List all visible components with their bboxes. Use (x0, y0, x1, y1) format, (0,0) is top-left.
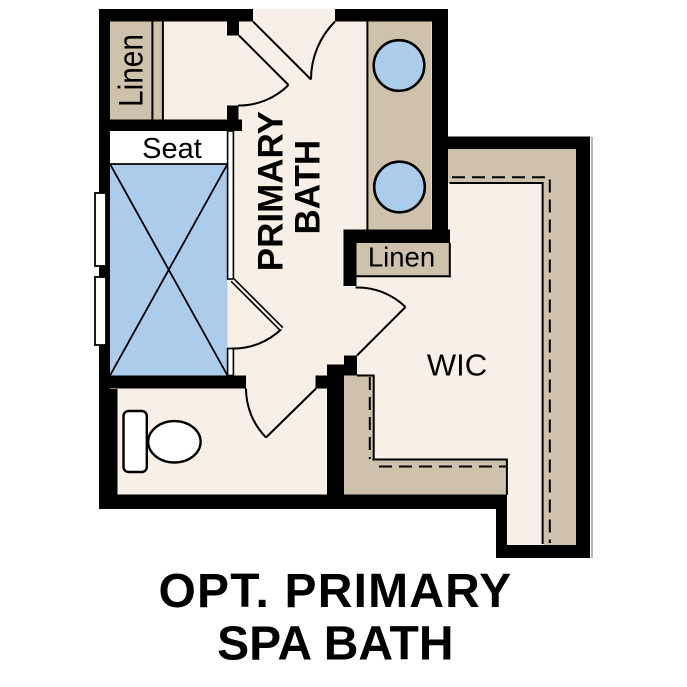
svg-text:PRIMARY: PRIMARY (252, 111, 291, 271)
svg-text:Seat: Seat (142, 133, 202, 165)
svg-text:BATH: BATH (289, 140, 328, 235)
svg-text:Linen: Linen (112, 34, 150, 107)
svg-text:WIC: WIC (427, 348, 487, 383)
svg-text:OPT. PRIMARY: OPT. PRIMARY (159, 565, 513, 618)
svg-text:SPA BATH: SPA BATH (217, 618, 453, 671)
svg-text:Linen: Linen (368, 242, 435, 273)
